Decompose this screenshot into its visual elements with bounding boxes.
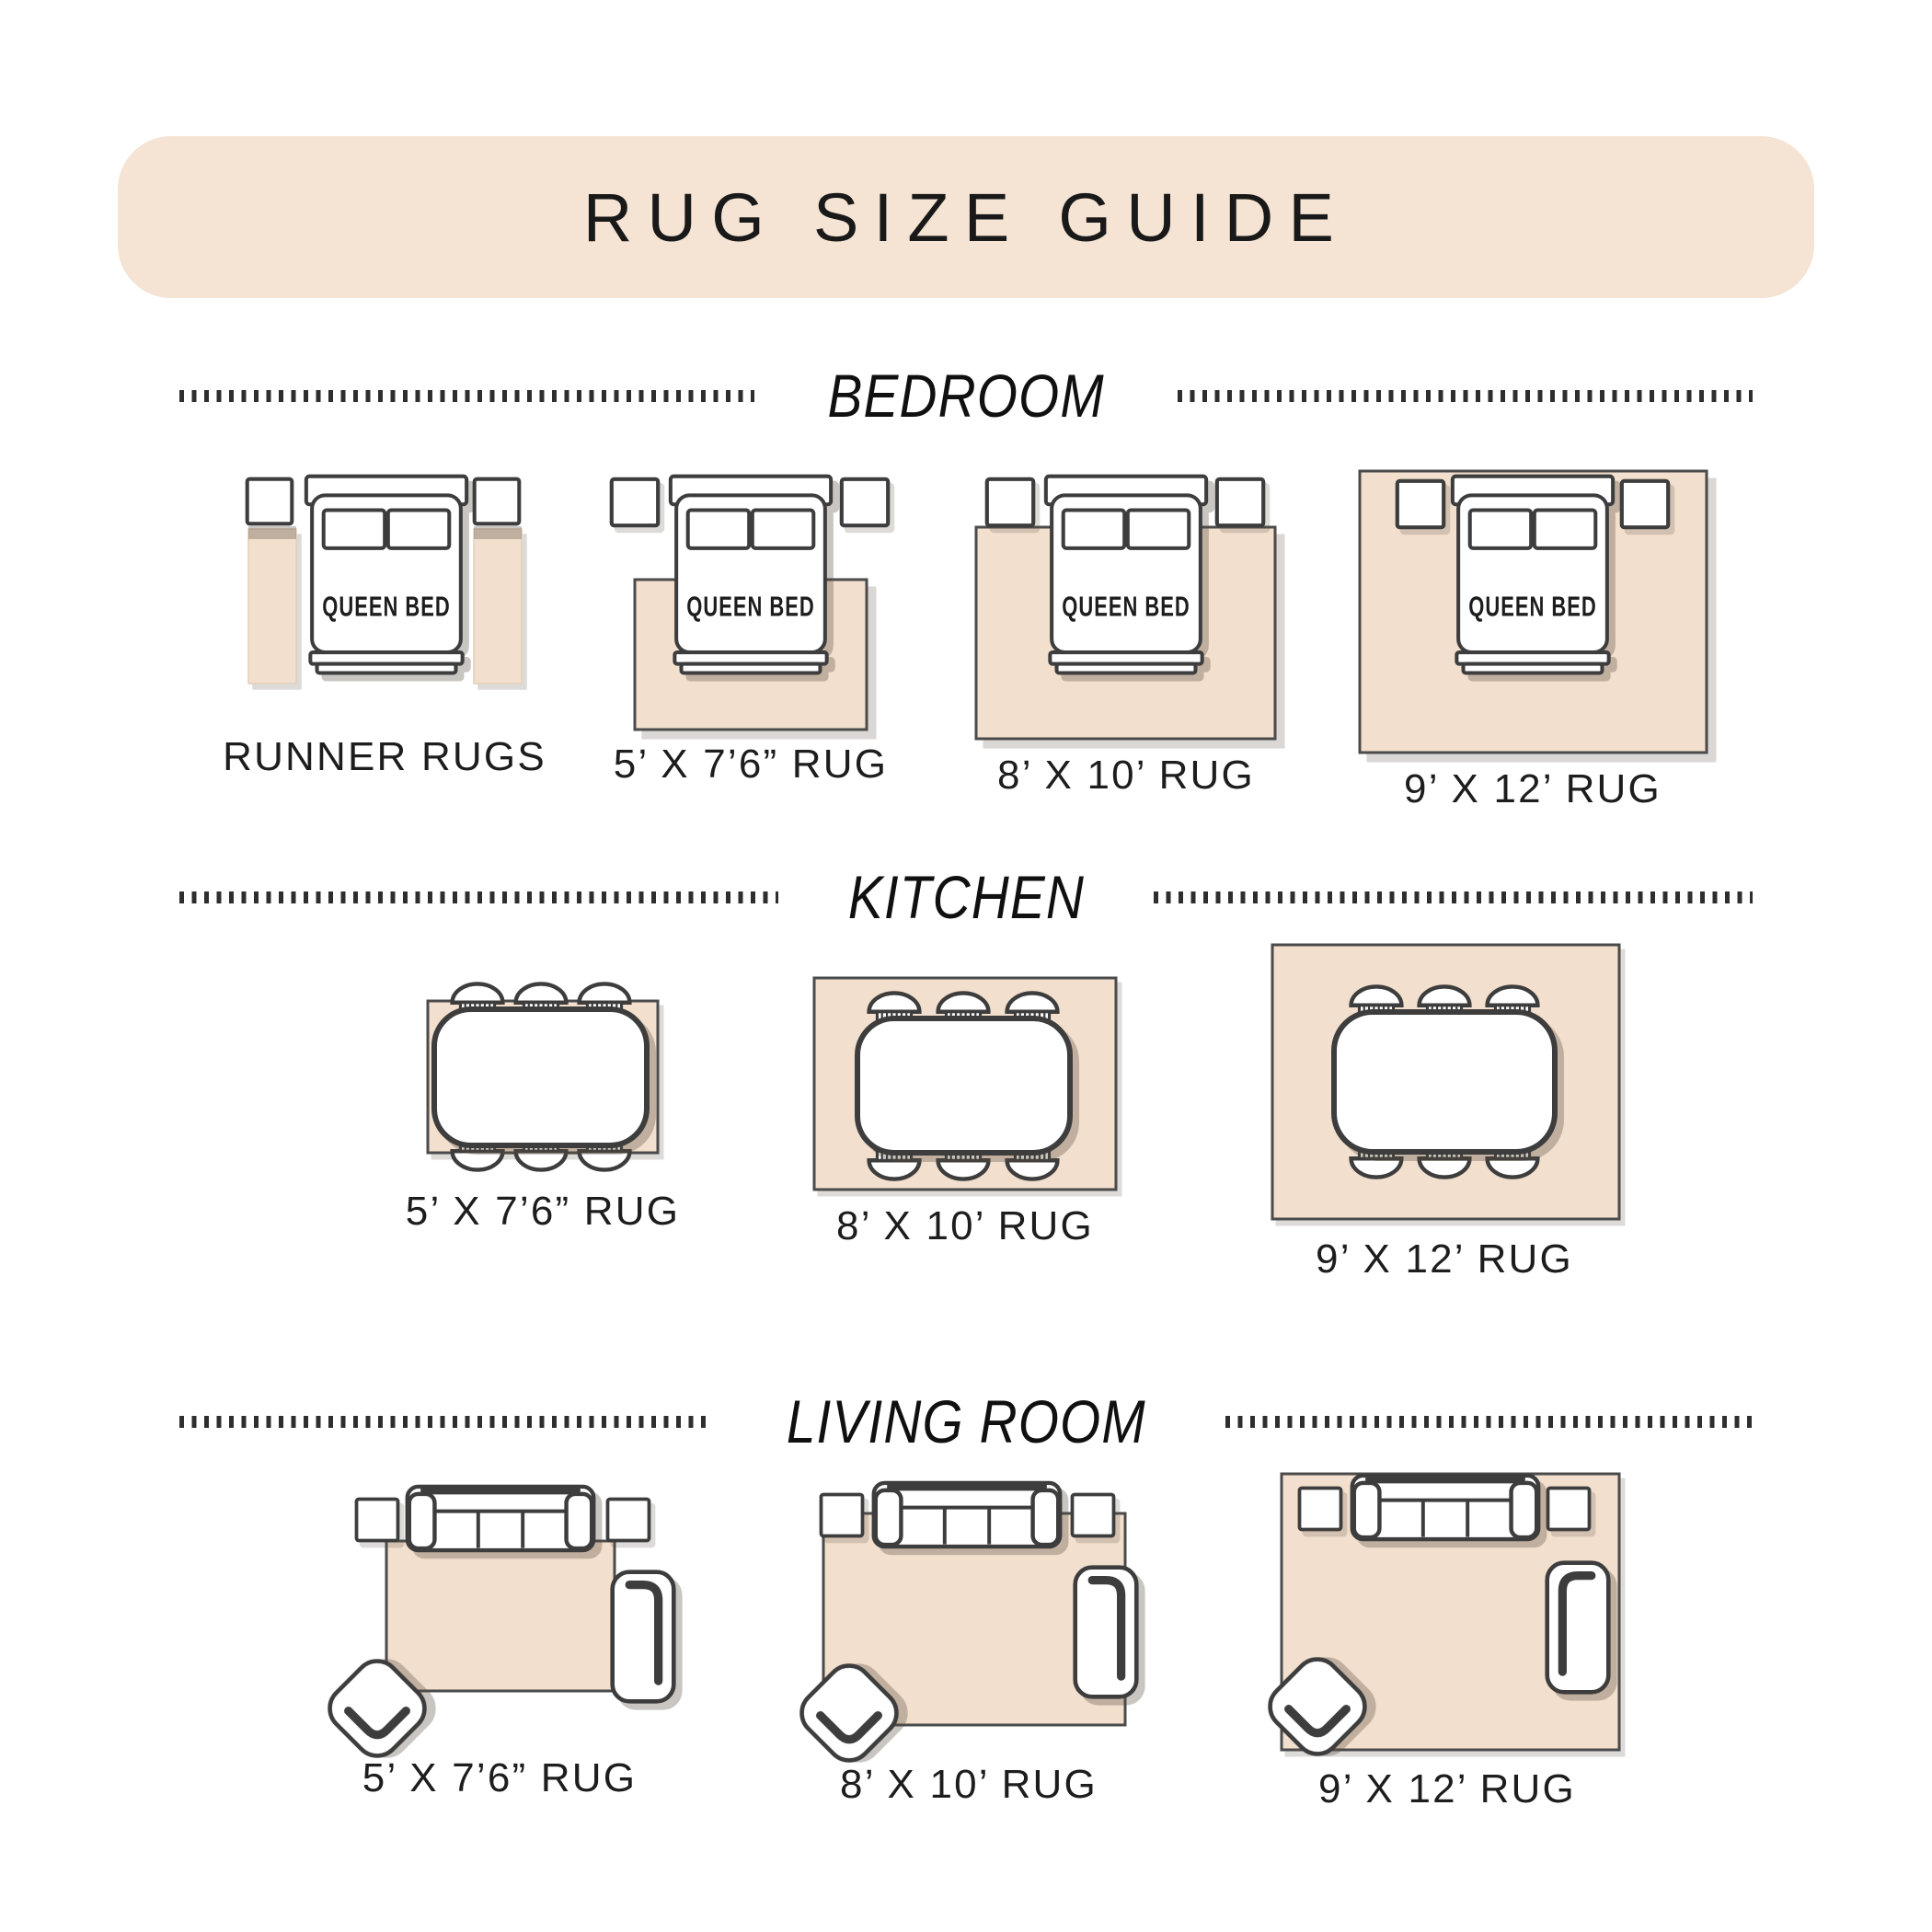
dotted-divider-right xyxy=(1178,390,1753,402)
diagram-living-room-8x10-rug xyxy=(782,1461,1168,1778)
nightstand-shadow xyxy=(248,526,296,539)
rug-size-label: 5’ X 7’6” RUG xyxy=(614,742,888,788)
nightstand-icon xyxy=(475,479,520,524)
nightstand-icon xyxy=(842,479,888,525)
nightstand-icon xyxy=(987,479,1033,525)
dotted-divider-left xyxy=(179,390,754,402)
queen-bed-icon xyxy=(1046,477,1206,673)
page-title: RUG SIZE GUIDE xyxy=(583,178,1349,257)
dotted-divider-left xyxy=(179,891,778,903)
rug-size-label: 9’ X 12’ RUG xyxy=(1316,1236,1573,1282)
side-table-icon xyxy=(822,1495,863,1536)
diagram-bedroom-9x12-rug xyxy=(1343,446,1730,814)
side-table-icon xyxy=(1300,1489,1341,1530)
section-title-bedroom: BEDROOM xyxy=(827,361,1104,431)
rug-size-label: 8’ X 10’ RUG xyxy=(836,1203,1094,1249)
side-table-icon xyxy=(608,1500,650,1541)
area-rug xyxy=(386,1541,615,1691)
nightstand-shadow xyxy=(474,526,522,539)
dining-table xyxy=(857,1018,1070,1153)
nightstand-icon xyxy=(612,479,658,525)
section-header-kitchen: KITCHEN xyxy=(179,864,1753,930)
rug-size-label: 5’ X 7’6” RUG xyxy=(362,1755,637,1801)
header-banner: RUG SIZE GUIDE xyxy=(118,136,1814,298)
chaise-icon xyxy=(613,1572,674,1702)
nightstand-icon xyxy=(247,479,293,524)
section-title-kitchen: KITCHEN xyxy=(847,862,1084,932)
side-table-icon xyxy=(1073,1495,1114,1536)
rug-size-label: 9’ X 12’ RUG xyxy=(1318,1766,1576,1812)
diagram-bedroom-5x76-rug xyxy=(598,451,911,791)
rug-size-label: 5’ X 7’6” RUG xyxy=(406,1189,680,1235)
queen-bed-icon xyxy=(671,477,831,673)
nightstand-icon xyxy=(1217,479,1263,525)
queen-bed-icon xyxy=(1453,477,1613,673)
diagram-bedroom-runner-rugs xyxy=(221,451,543,699)
dining-table xyxy=(434,1009,647,1145)
side-table-icon xyxy=(1548,1489,1590,1530)
nightstand-icon xyxy=(1397,481,1443,527)
chaise-icon xyxy=(1075,1568,1137,1697)
diagram-living-room-5x76-rug xyxy=(304,1461,708,1774)
sofa-icon xyxy=(874,1482,1060,1547)
rug-size-label: RUNNER RUGS xyxy=(223,734,546,780)
sofa-icon xyxy=(1352,1475,1538,1539)
diagram-kitchen-5x76-rug xyxy=(396,957,690,1187)
side-table-icon xyxy=(357,1500,398,1541)
dotted-divider-right xyxy=(1154,891,1753,903)
rug-size-label: 8’ X 10’ RUG xyxy=(997,753,1255,799)
diagram-kitchen-8x10-rug xyxy=(800,961,1132,1201)
dotted-divider-left xyxy=(179,1416,707,1428)
nightstand-icon xyxy=(1622,481,1668,527)
dotted-divider-right xyxy=(1225,1416,1753,1428)
rug-size-label: 8’ X 10’ RUG xyxy=(840,1762,1098,1808)
diagram-bedroom-8x10-rug xyxy=(966,451,1288,800)
queen-bed-icon xyxy=(306,477,466,673)
chaise-icon xyxy=(1547,1563,1609,1693)
section-title-living-room: LIVING ROOM xyxy=(787,1386,1146,1456)
dining-table xyxy=(1334,1012,1555,1152)
section-header-living-room: LIVING ROOM xyxy=(179,1388,1753,1455)
rug-size-label: 9’ X 12’ RUG xyxy=(1404,766,1662,812)
diagram-living-room-9x12-rug xyxy=(1265,1456,1642,1778)
runner-rug xyxy=(248,529,296,684)
section-header-bedroom: BEDROOM xyxy=(179,362,1753,429)
diagram-kitchen-9x12-rug xyxy=(1260,934,1638,1228)
runner-rug xyxy=(474,529,522,684)
sofa-icon xyxy=(408,1486,593,1550)
